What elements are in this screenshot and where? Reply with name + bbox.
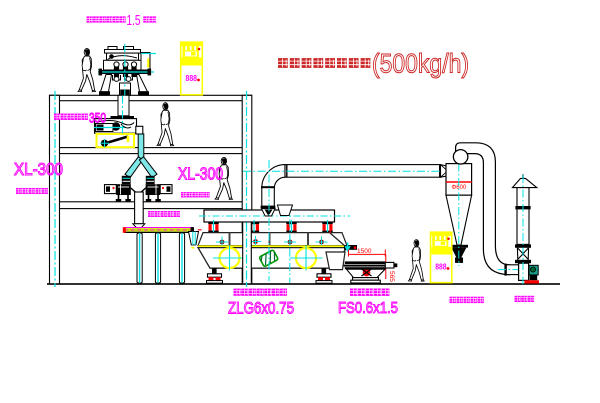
svg-text:XL-300: XL-300 [14, 159, 63, 179]
svg-text:FS0.6x1.5: FS0.6x1.5 [338, 300, 398, 317]
svg-text:565: 565 [388, 271, 395, 282]
svg-text:XL-300: XL-300 [178, 164, 223, 184]
svg-text:1.5: 1.5 [127, 13, 141, 29]
svg-text:ZLG6x0.75: ZLG6x0.75 [228, 300, 294, 318]
svg-text:350: 350 [89, 111, 106, 126]
svg-text:1500: 1500 [357, 248, 372, 255]
svg-text:(500kg/h): (500kg/h) [372, 49, 469, 79]
